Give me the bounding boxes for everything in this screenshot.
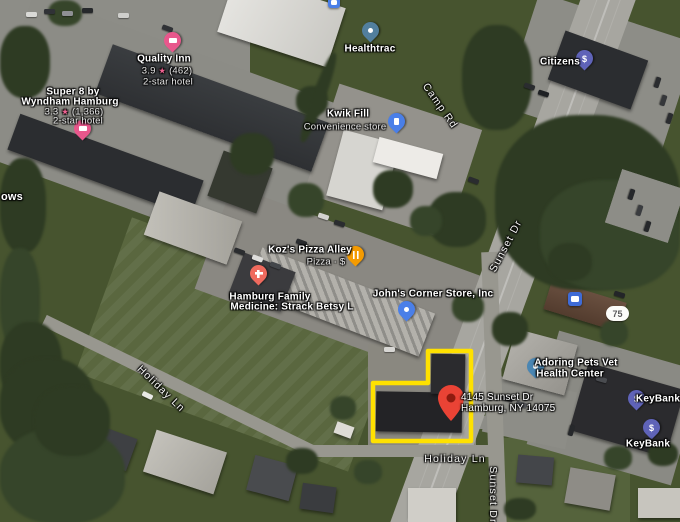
dollar-icon: $: [643, 419, 660, 436]
tree: [330, 396, 356, 420]
label-hamburg-family-line2[interactable]: Medicine: Strack Betsy L: [230, 302, 353, 313]
label-keybank-south[interactable]: KeyBank: [626, 439, 670, 450]
tree: [600, 320, 628, 346]
trees: [462, 25, 532, 130]
satellite-map[interactable]: 75 $ $ $ Quality Inn 3.9 ★ (462) 2-star …: [0, 0, 680, 522]
house: [143, 430, 227, 495]
shopping-cart-icon: [398, 301, 415, 318]
label-keybank-north[interactable]: KeyBank: [636, 394, 680, 405]
label-kozs-pizza[interactable]: Koz's Pizza Alley: [268, 245, 352, 256]
trees: [0, 26, 50, 98]
label-adoring-pets-line2[interactable]: Health Center: [536, 369, 604, 380]
car: [467, 176, 479, 184]
label-johns-corner[interactable]: John's Corner Store, Inc: [373, 289, 494, 300]
gas-pin-kwik-fill[interactable]: [384, 109, 408, 133]
tree: [548, 243, 592, 281]
car: [614, 291, 626, 299]
route-number: 75: [612, 309, 622, 319]
label-quality-inn[interactable]: Quality Inn: [137, 54, 191, 65]
quality-inn-category: 2-star hotel: [143, 77, 193, 88]
bus-glyph: [571, 296, 579, 302]
medical-pin-hamburg-family[interactable]: [246, 261, 270, 285]
label-citizens[interactable]: Citizens: [540, 57, 580, 68]
car: [82, 8, 93, 13]
tree: [373, 170, 413, 208]
car: [118, 13, 129, 18]
tree: [604, 446, 632, 470]
gas-pump-icon: [388, 113, 405, 130]
star-icon: ★: [158, 66, 166, 76]
map-icon-partial[interactable]: [328, 0, 340, 8]
house: [564, 467, 616, 510]
review-count: (462): [169, 66, 192, 77]
house: [299, 483, 336, 513]
icon-glyph: [331, 0, 337, 5]
edge-label-partial: ows: [1, 191, 23, 203]
rating-value: 3.9: [142, 66, 156, 77]
car: [44, 9, 55, 14]
store-pin-johns-corner[interactable]: [394, 297, 418, 321]
bus-stop-icon[interactable]: [568, 292, 582, 306]
trees: [0, 158, 46, 253]
quality-inn-rating: 3.9 ★ (462): [142, 66, 193, 77]
tree: [286, 448, 318, 474]
tree: [354, 460, 382, 484]
trees: [34, 386, 110, 456]
house: [408, 488, 456, 522]
tree: [410, 206, 442, 236]
route-75-shield: 75: [606, 306, 629, 321]
car: [384, 347, 395, 352]
label-healthtrac[interactable]: Healthtrac: [345, 44, 396, 55]
house: [516, 454, 554, 485]
tree: [492, 312, 528, 346]
label-kwik-fill[interactable]: Kwik Fill: [327, 109, 369, 120]
label-adoring-pets-line1[interactable]: Adoring Pets Vet: [534, 358, 617, 369]
road-label-holiday-ln-bottom: Holiday Ln: [424, 453, 486, 465]
medical-cross-icon: [250, 265, 267, 282]
car: [26, 12, 37, 17]
tree: [504, 498, 536, 520]
road-label-sunset-dr-lower: Sunset Dr: [487, 466, 499, 522]
tree: [230, 133, 274, 175]
lodging-pin-quality-inn[interactable]: [160, 28, 184, 52]
super8-category: 2-star hotel: [53, 116, 103, 127]
kwik-fill-category: Convenience store: [304, 122, 387, 133]
house: [638, 488, 680, 518]
bank-pin-keybank-south[interactable]: $: [639, 415, 663, 439]
marker-address-line1: 4145 Sunset Dr: [461, 392, 533, 403]
marker-address-line2: Hamburg, NY 14075: [461, 403, 555, 414]
car: [62, 11, 73, 16]
dot-icon: [362, 22, 379, 39]
kozs-pizza-category: Pizza · $: [307, 257, 346, 268]
generic-pin-healthtrac[interactable]: [358, 18, 382, 42]
bed-icon: [164, 32, 181, 49]
